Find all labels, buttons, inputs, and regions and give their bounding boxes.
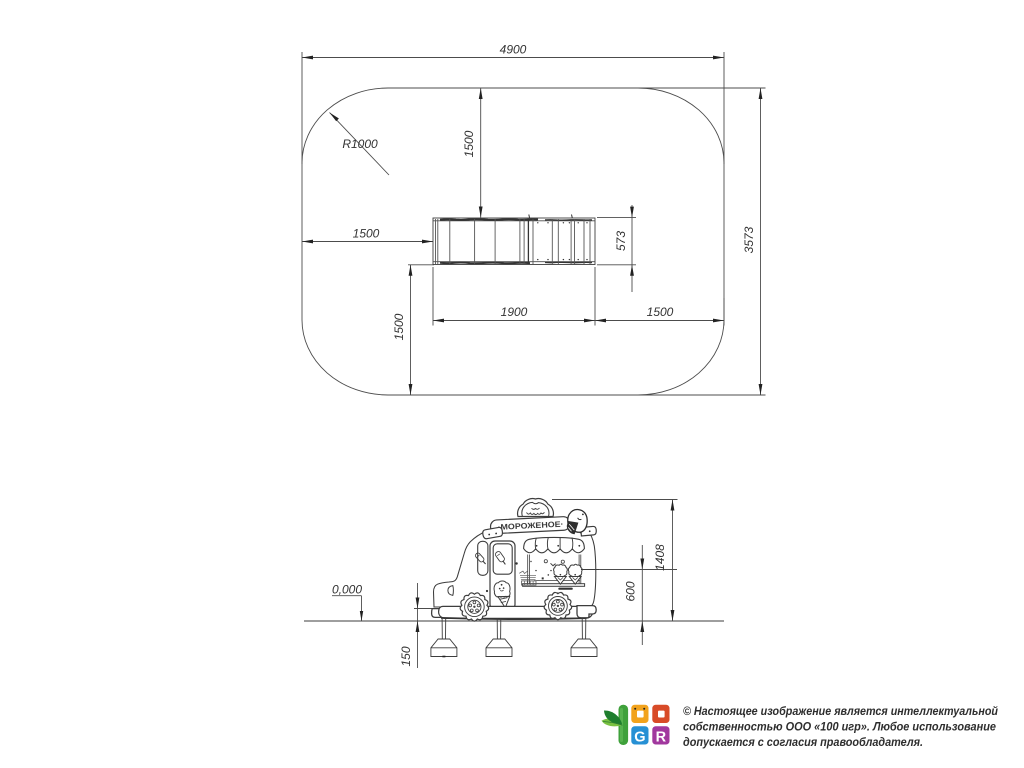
svg-text:4900: 4900 bbox=[500, 43, 527, 57]
svg-text:3573: 3573 bbox=[742, 226, 756, 253]
svg-text:0,000: 0,000 bbox=[332, 583, 362, 597]
svg-text:573: 573 bbox=[614, 231, 628, 251]
svg-text:600: 600 bbox=[624, 581, 638, 601]
svg-text:R: R bbox=[656, 729, 667, 745]
svg-text:1500: 1500 bbox=[462, 130, 476, 157]
svg-text:R1000: R1000 bbox=[342, 137, 378, 151]
svg-text:© Настоящее изображение являет: © Настоящее изображение является интелле… bbox=[683, 704, 998, 718]
svg-text:1500: 1500 bbox=[392, 313, 406, 340]
svg-text:1900: 1900 bbox=[501, 305, 528, 319]
svg-text:1500: 1500 bbox=[647, 305, 674, 319]
svg-text:G: G bbox=[634, 729, 645, 745]
svg-text:1408: 1408 bbox=[653, 544, 667, 571]
svg-text:1500: 1500 bbox=[353, 227, 380, 241]
svg-text:150: 150 bbox=[399, 646, 413, 666]
svg-text:допускается с согласия правооб: допускается с согласия правообладателя. bbox=[683, 735, 923, 749]
svg-text:собственностью ООО «100 игр».: собственностью ООО «100 игр». Любое испо… bbox=[683, 720, 996, 734]
